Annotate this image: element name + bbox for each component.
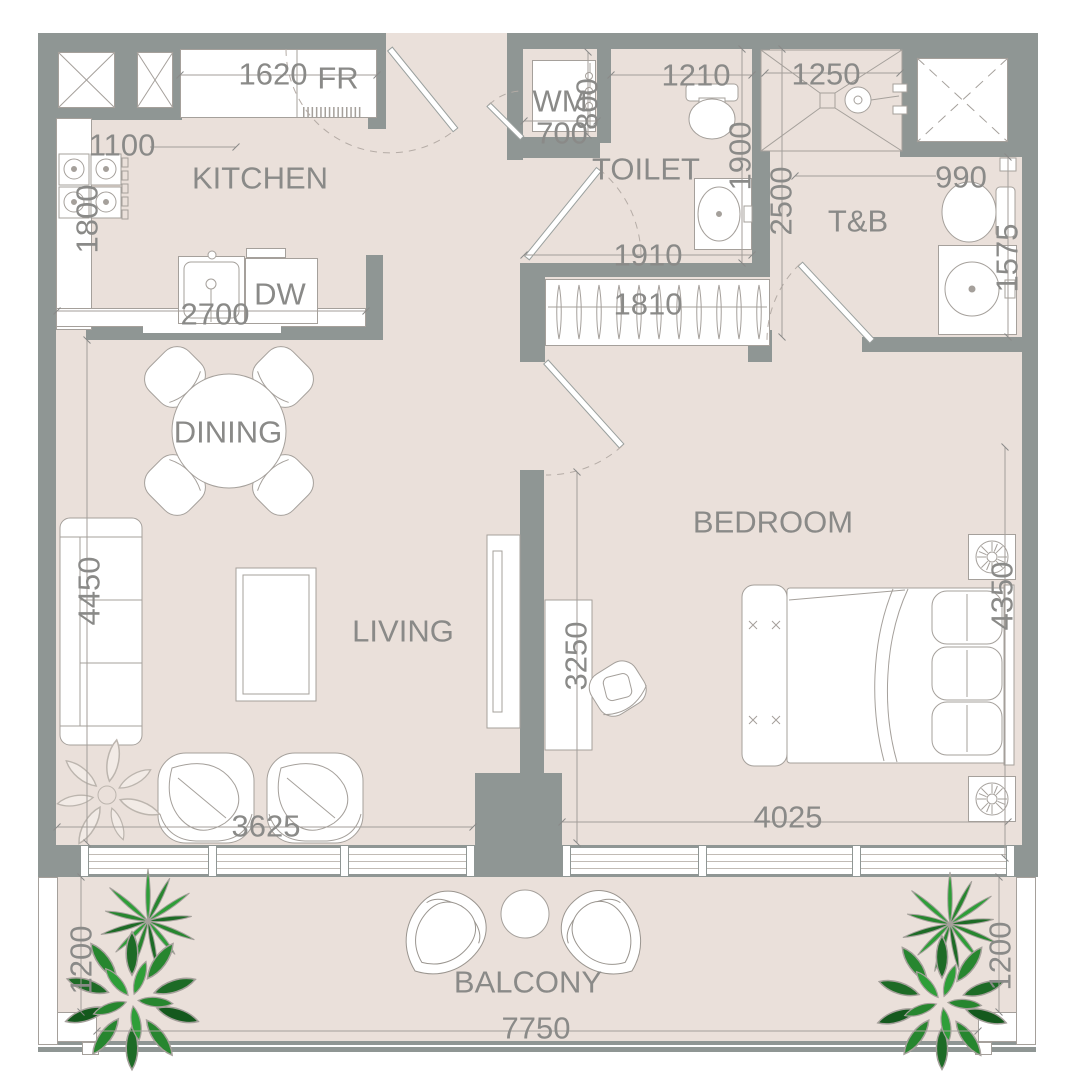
dim-tnb-width: 990 [935,162,987,193]
dim-tnb-depth: 2500 [766,167,797,236]
room-label-toilet: TOILET [592,154,700,185]
sofa [60,518,142,745]
tnb-door-leaf [798,262,874,343]
dim-wm-depth: 800 [572,78,603,130]
dim-hall-width: 1910 [614,240,683,271]
room-label-tnb: T&B [828,206,888,237]
coffee-table [236,568,316,701]
dim-toilet-depth: 1900 [725,122,756,191]
dim-tnb-side: 1575 [992,224,1023,293]
dim-bedroom-width: 4025 [754,802,823,833]
shaft-x-icon [137,52,173,108]
floorplan: KITCHEN TOILET T&B DINING LIVING BEDROOM… [0,0,1074,1080]
fixture-label-dw: DW [254,279,306,310]
dim-living-width: 3625 [232,811,301,842]
toilet-door-leaf [525,168,601,260]
dim-shower-width: 1250 [792,59,861,90]
shaft-x-icon [917,58,1008,142]
desk-chair [583,655,652,722]
room-label-living: LIVING [352,616,454,647]
room-label-dining: DINING [174,417,283,448]
lamp-icon [976,783,1008,815]
dim-counter-run: 2700 [181,299,250,330]
dim-balcony-depth-left: 1200 [66,926,97,995]
dim-center-span: 3250 [561,622,592,691]
entry-door-leaf [388,47,458,132]
fixture-label-fridge: FR [317,63,358,94]
bedroom-door-leaf [544,360,624,448]
dimension-lines [57,49,1008,1031]
shaft-x-icon [58,52,115,108]
bed [742,585,1014,766]
dim-kitchen-opening: 1100 [89,130,156,161]
room-label-kitchen: KITCHEN [192,163,328,194]
dim-bedroom-depth: 4350 [987,562,1018,631]
dim-balcony-depth-right: 1200 [985,922,1016,991]
entry-door-leaf [487,103,524,140]
sink-icon [698,187,752,241]
dim-kitchen-depth: 1800 [72,185,103,254]
dim-toilet-width: 1210 [662,60,731,91]
dim-living-depth: 4450 [74,557,105,626]
dim-balcony-width: 7750 [502,1013,571,1044]
plant-icon [57,739,162,846]
room-label-bedroom: BEDROOM [693,507,853,538]
room-label-balcony: BALCONY [454,967,602,998]
dim-closet-width: 1810 [614,289,683,320]
floorplan-graphics [0,0,1074,1080]
tv-console [487,535,520,728]
dim-fridge-width: 1620 [239,59,308,90]
palm-plant-icon [100,869,195,969]
